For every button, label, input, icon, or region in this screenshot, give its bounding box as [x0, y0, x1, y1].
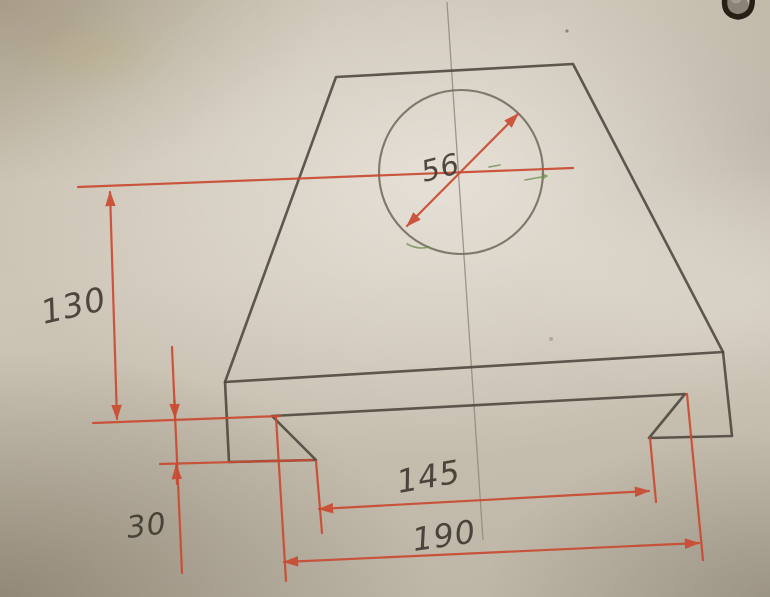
part-body-outline [225, 64, 723, 382]
center-height-label: 130 [37, 279, 110, 332]
dimension-lines [78, 114, 703, 581]
hole-diameter-label: 56 [417, 146, 463, 188]
dim-line-130 [110, 192, 117, 419]
sketch-canvas: 130 56 30 145 190 [0, 0, 770, 597]
groove-width-top-label: 190 [410, 512, 479, 559]
dim-30-arrow-top [175, 400, 176, 418]
ext-line-145-left [316, 461, 322, 533]
ext-line-145-right [650, 438, 656, 502]
paper-speck [549, 337, 553, 341]
ext-line-190-right [687, 394, 703, 560]
groove-width-bottom-label: 145 [394, 452, 464, 501]
paper-speck [565, 29, 568, 32]
ext-line-groove-roof [93, 416, 280, 423]
dim-line-190 [284, 543, 699, 562]
ext-line-190-left [276, 417, 286, 581]
photo-of-technical-sketch: 130 56 30 145 190 [0, 0, 770, 597]
part-base-dovetail-profile [225, 352, 732, 462]
dim-30-arrow-bottom [176, 465, 177, 484]
green-check-mark [489, 165, 500, 167]
paper-punch-hole [725, 0, 753, 17]
groove-depth-label: 30 [125, 506, 169, 546]
dim-line-30 [172, 347, 182, 573]
ext-line-hole-center [78, 168, 573, 187]
dim-line-145 [319, 491, 649, 509]
